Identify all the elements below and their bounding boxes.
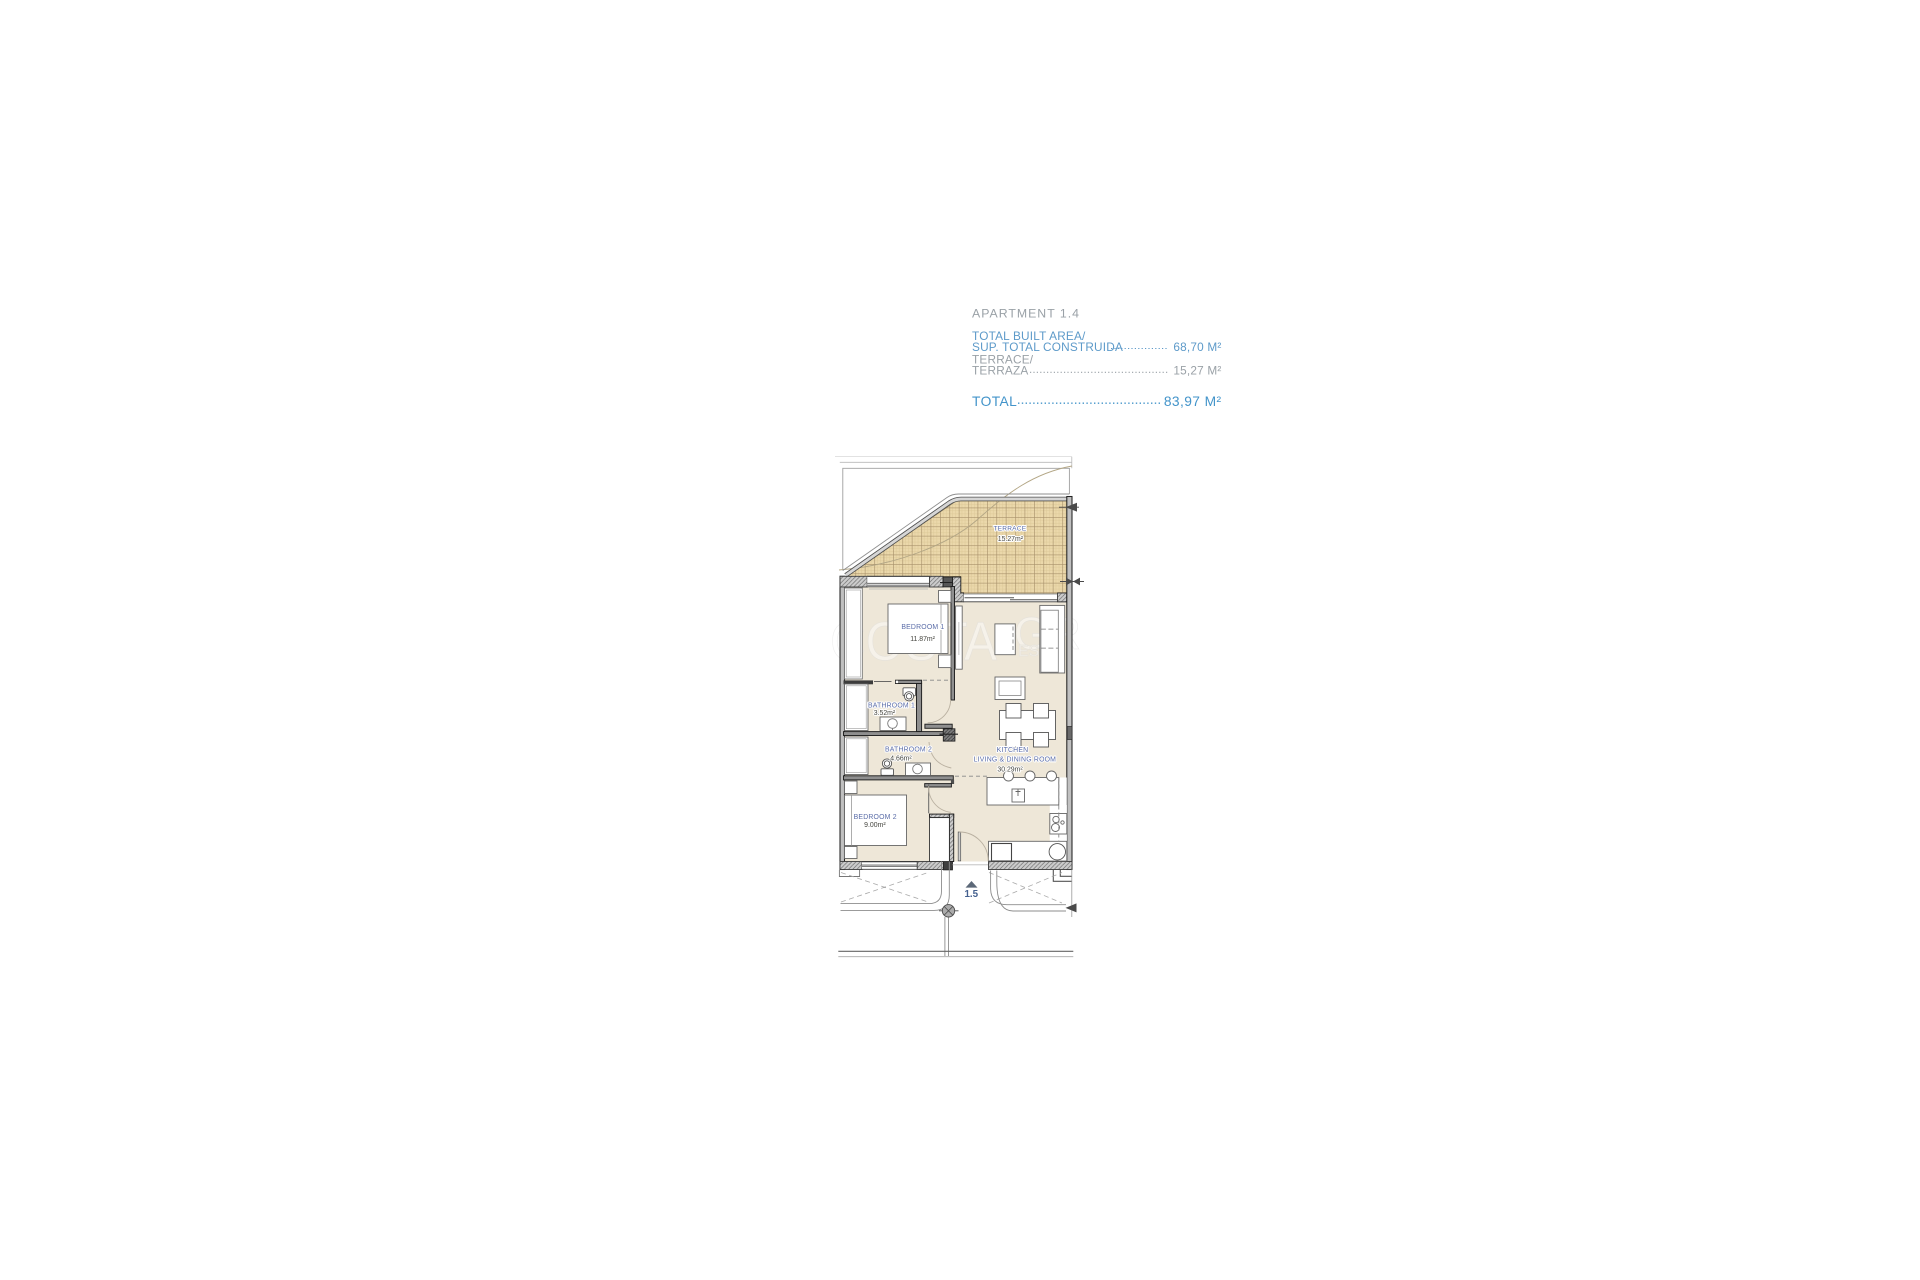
svg-text:ES: ES — [1018, 643, 1039, 660]
svg-text:BEDROOM 2: BEDROOM 2 — [854, 814, 897, 821]
svg-text:TERRACE: TERRACE — [993, 526, 1026, 533]
svg-text:1.5: 1.5 — [964, 889, 978, 900]
svg-text:BATHROOM 1: BATHROOM 1 — [868, 703, 915, 710]
svg-text:30.29m²: 30.29m² — [997, 766, 1023, 773]
svg-text:15,27 M²: 15,27 M² — [1173, 364, 1221, 378]
svg-text:11.87m²: 11.87m² — [910, 636, 935, 643]
svg-text:LIVING & DINING ROOM: LIVING & DINING ROOM — [974, 757, 1057, 764]
svg-text:APARTMENT 1.4: APARTMENT 1.4 — [972, 307, 1080, 321]
svg-text:TOTAL: TOTAL — [972, 394, 1017, 409]
svg-text:BATHROOM 2: BATHROOM 2 — [885, 746, 932, 753]
svg-text:TERRAZA: TERRAZA — [972, 364, 1028, 378]
svg-text:BEDROOM 1: BEDROOM 1 — [901, 624, 944, 631]
svg-text:83,97 M²: 83,97 M² — [1164, 394, 1222, 409]
svg-text:4.66m²: 4.66m² — [890, 756, 912, 763]
svg-text:3.52m²: 3.52m² — [874, 710, 896, 717]
svg-text:9.00m²: 9.00m² — [864, 822, 886, 829]
svg-text:15.27m²: 15.27m² — [998, 536, 1024, 543]
svg-text:68,70 M²: 68,70 M² — [1173, 340, 1221, 354]
svg-text:KITCHEN: KITCHEN — [997, 747, 1029, 754]
